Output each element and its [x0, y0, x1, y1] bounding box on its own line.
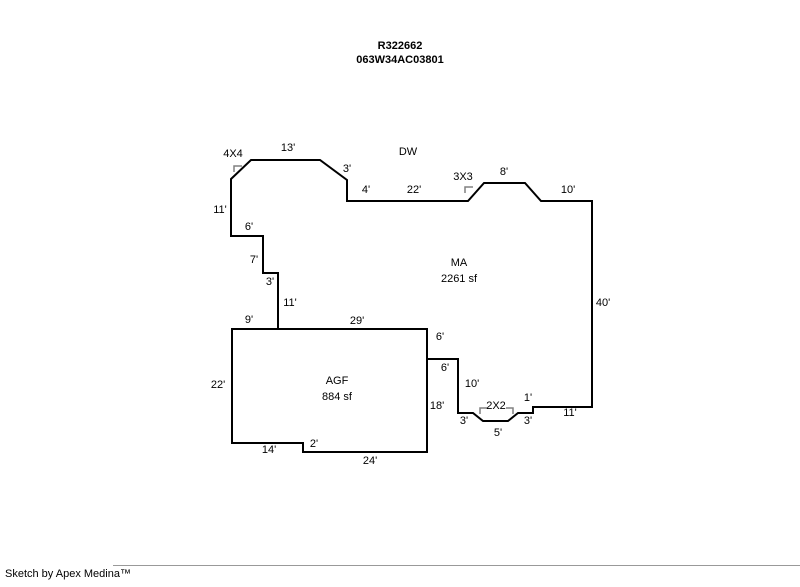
- mark-2x2-right: [506, 408, 513, 414]
- dimension-label-6: 3X3: [453, 171, 473, 183]
- dimension-label-0: 4X4: [223, 148, 243, 160]
- dimension-label-1: 13': [281, 142, 295, 154]
- dimension-label-10: 6': [245, 221, 253, 233]
- dimension-label-27: 11': [563, 407, 577, 419]
- ma-label: MA: [451, 257, 468, 269]
- dimension-label-21: 18': [430, 400, 444, 412]
- dimension-label-4: 4': [362, 184, 370, 196]
- dimension-label-17: 6': [436, 331, 444, 343]
- dimension-label-11: 7': [250, 254, 258, 266]
- dimension-label-19: 10': [465, 378, 479, 390]
- dimension-label-16: 40': [596, 297, 610, 309]
- footer-rule-line: [113, 565, 800, 566]
- dimension-label-25: 3': [524, 415, 532, 427]
- mark-3x3: [465, 187, 473, 193]
- dimension-label-30: 24': [363, 455, 377, 467]
- dimension-label-26: 1': [524, 392, 532, 404]
- agf-label: AGF: [326, 375, 349, 387]
- dimension-label-15: 29': [350, 315, 364, 327]
- dimension-label-20: 22': [211, 379, 225, 391]
- dimension-label-13: 11': [283, 297, 297, 309]
- dimension-label-3: DW: [399, 146, 418, 158]
- dimension-label-2: 3': [343, 163, 351, 175]
- dimension-label-7: 8': [500, 166, 508, 178]
- dimension-label-23: 2X2: [486, 400, 506, 412]
- agf-area-label: 884 sf: [322, 391, 353, 403]
- floorplan-sketch: MA2261 sfAGF884 sf4X413'3'DW4'22'3X38'10…: [0, 0, 800, 587]
- ma-area-label: 2261 sf: [441, 273, 478, 285]
- dimension-label-8: 10': [561, 184, 575, 196]
- ma-outline: [231, 160, 592, 421]
- sketch-credit: Sketch by Apex Medina™: [5, 568, 131, 580]
- dimension-label-22: 3': [460, 415, 468, 427]
- dimension-label-12: 3': [266, 276, 274, 288]
- dimension-label-29: 2': [310, 438, 318, 450]
- dimension-label-24: 5': [494, 427, 502, 439]
- dimension-label-28: 14': [262, 444, 276, 456]
- dimension-label-18: 6': [441, 362, 449, 374]
- dimension-label-5: 22': [407, 184, 421, 196]
- dimension-label-14: 9': [245, 314, 253, 326]
- dimension-label-9: 11': [213, 204, 227, 216]
